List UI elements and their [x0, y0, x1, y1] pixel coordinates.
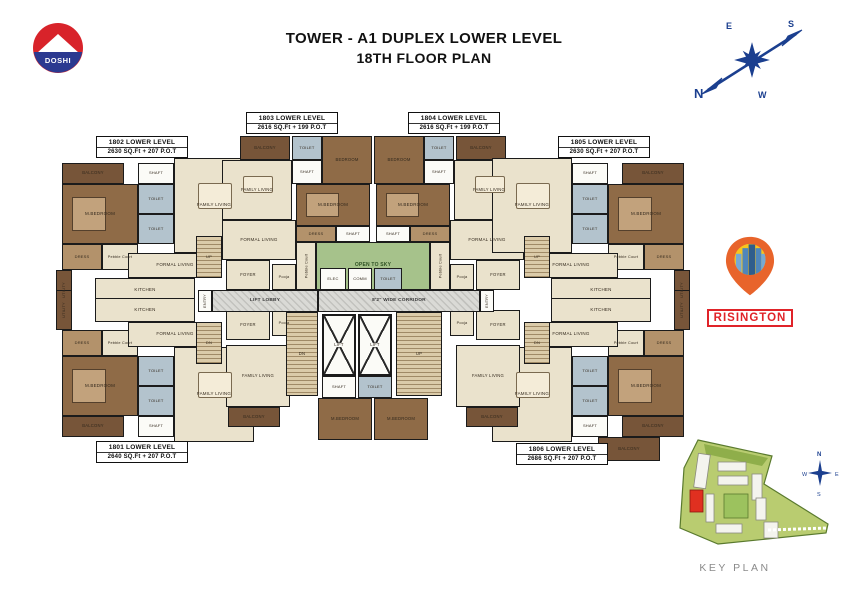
unit-label-1801: 1801 LOWER LEVEL2640 SQ.Ft + 207 P.O.T: [96, 441, 188, 463]
room-pooja: Pooja: [450, 264, 474, 290]
room-label: Pooja: [279, 275, 290, 279]
room-shaft: SHAFT: [336, 226, 370, 242]
key-plan-compass-w: W: [802, 472, 808, 478]
room-balcony: BALCONY: [62, 416, 124, 437]
unit-number: 1802 LOWER LEVEL: [97, 139, 187, 148]
room-dn: DN: [524, 322, 550, 364]
room-toilet: TOILET: [572, 184, 608, 214]
room-up: UP: [396, 312, 442, 396]
room-pooja: Pooja: [450, 310, 474, 336]
room-label: ENTRY: [485, 294, 489, 308]
room-label: OPEN TO SKY: [355, 263, 391, 268]
room-label: TOILET: [582, 399, 597, 403]
room-shaft: SHAFT: [138, 416, 174, 437]
room-toilet: TOILET: [138, 184, 174, 214]
room-label: BALCONY: [470, 146, 491, 150]
room-dress: DRESS: [644, 330, 684, 356]
room-label: DN: [299, 352, 305, 356]
room-label: SHAFT: [346, 232, 360, 236]
room-label: ELEC: [327, 277, 338, 281]
room-shaft: SHAFT: [424, 160, 454, 184]
room-label: SHAFT: [583, 424, 597, 428]
room-label: TOILET: [299, 146, 314, 150]
key-plan-highlight-a1: [690, 490, 703, 512]
room-dn: DN: [196, 322, 222, 364]
room-label: FORMAL LIVING: [552, 263, 589, 268]
room-label: M.BEDROOM: [331, 417, 359, 421]
room-balcony: BALCONY: [228, 407, 280, 427]
room-label: LIFT: [369, 343, 380, 347]
room-label: DRESS: [423, 232, 438, 236]
room-label: BALCONY: [642, 424, 663, 428]
key-plan-label: KEY PLAN: [660, 562, 810, 574]
room-label: M.BEDROOM: [387, 417, 415, 421]
unit-area: 2630 SQ.Ft + 207 P.O.T: [97, 148, 187, 155]
room-label: SHAFT: [149, 171, 163, 175]
unit-number: 1803 LOWER LEVEL: [247, 115, 337, 124]
room-toilet: TOILET: [572, 386, 608, 416]
room-pooja: Pooja: [272, 264, 296, 290]
room-label: KITCHEN: [590, 308, 611, 313]
room-label: LIFT LOBBY: [250, 298, 280, 303]
room-label: TOILET: [148, 227, 163, 231]
room-label: DN: [534, 341, 540, 345]
room-label: TOILET: [582, 369, 597, 373]
room-toilet: TOILET: [138, 214, 174, 244]
room-label: DRESS: [309, 232, 324, 236]
room-label: TOILET: [367, 385, 382, 389]
room-label: UTILITY: [680, 282, 684, 298]
room-dress: DRESS: [296, 226, 336, 242]
room-label: FAMILY LIVING: [515, 392, 549, 397]
room-balcony: BALCONY: [456, 136, 506, 160]
room-label: BEDROOM: [335, 158, 358, 162]
room-8-2-wide-corridor: 8'2" WIDE CORRIDOR: [318, 290, 480, 312]
room-label: FOYER: [240, 273, 255, 277]
key-plan-compass-n: N: [817, 452, 821, 458]
room-label: FAMILY LIVING: [197, 203, 231, 208]
room-label: Pooja: [457, 275, 468, 279]
room-m-bedroom: M.BEDROOM: [608, 184, 684, 244]
room-label: DRESS: [657, 341, 672, 345]
room-label: TOILET: [582, 227, 597, 231]
room-foyer: FOYER: [226, 260, 270, 290]
room-label: M.BEDROOM: [85, 212, 115, 217]
room-kitchen: KITCHEN: [95, 298, 195, 322]
room-lift: LIFT: [322, 314, 356, 376]
room-m-bedroom: M.BEDROOM: [296, 184, 370, 226]
unit-number: 1804 LOWER LEVEL: [409, 115, 499, 124]
room-label: KITCHEN: [134, 288, 155, 293]
room-label: ENTRY: [203, 294, 207, 308]
unit-label-1806: 1806 LOWER LEVEL2686 SQ.Ft + 207 P.O.T: [516, 443, 608, 465]
room-dress: DRESS: [62, 330, 102, 356]
room-lift: LIFT: [358, 314, 392, 376]
room-label: DRESS: [75, 341, 90, 345]
room-label: BALCONY: [481, 415, 502, 419]
room-foyer: FOYER: [226, 310, 270, 340]
room-dress: DRESS: [644, 244, 684, 270]
room-up: UP: [524, 236, 550, 278]
room-label: Pebble Court: [614, 255, 639, 259]
unit-number: 1806 LOWER LEVEL: [517, 446, 607, 455]
room-kitchen: KITCHEN: [551, 298, 651, 322]
room-balcony: BALCONY: [466, 407, 518, 427]
key-plan: N E S W: [660, 432, 846, 565]
room-label: 8'2" WIDE CORRIDOR: [372, 298, 426, 303]
room-label: Pebble Court: [438, 254, 442, 279]
unit-area: 2640 SQ.Ft + 207 P.O.T: [97, 453, 187, 460]
room-shaft: SHAFT: [572, 163, 608, 184]
room-toilet: TOILET: [572, 356, 608, 386]
room-label: FORMAL LIVING: [156, 263, 193, 268]
room-family-living: FAMILY LIVING: [226, 345, 290, 407]
room-label: TOILET: [148, 399, 163, 403]
unit-label-1802: 1802 LOWER LEVEL2630 SQ.Ft + 207 P.O.T: [96, 136, 188, 158]
room-m-bedroom: M.BEDROOM: [62, 184, 138, 244]
unit-area: 2616 SQ.Ft + 199 P.O.T: [247, 124, 337, 131]
room-label: M.BEDROOM: [631, 212, 661, 217]
risington-pin-icon: [720, 234, 780, 300]
room-toilet: TOILET: [138, 386, 174, 416]
room-label: M.BEDROOM: [631, 384, 661, 389]
room-comm: COMM: [348, 268, 372, 290]
room-label: BALCONY: [642, 171, 663, 175]
room-label: KITCHEN: [134, 308, 155, 313]
room-label: DN: [206, 341, 212, 345]
room-label: FOYER: [490, 273, 505, 277]
room-entry: ENTRY: [480, 290, 494, 312]
room-label: Pebble Court: [614, 341, 639, 345]
room-m-bedroom: M.BEDROOM: [374, 398, 428, 440]
room-label: DRESS: [657, 255, 672, 259]
room-label: DRESS: [75, 255, 90, 259]
room-lift-lobby: LIFT LOBBY: [212, 290, 318, 312]
room-label: BALCONY: [82, 424, 103, 428]
room-label: UP: [206, 255, 212, 259]
room-foyer: FOYER: [476, 260, 520, 290]
room-label: BALCONY: [254, 146, 275, 150]
unit-area: 2686 SQ.Ft + 207 P.O.T: [517, 455, 607, 462]
room-balcony: BALCONY: [622, 163, 684, 184]
room-toilet: TOILET: [138, 356, 174, 386]
room-label: TOILET: [148, 197, 163, 201]
key-plan-map: N E S W: [660, 432, 846, 560]
room-label: FAMILY LIVING: [473, 188, 505, 192]
key-plan-compass-s: S: [817, 492, 821, 498]
room-label: TOILET: [582, 197, 597, 201]
room-label: FAMILY LIVING: [472, 374, 504, 378]
room-foyer: FOYER: [476, 310, 520, 340]
key-plan-park: [724, 494, 748, 518]
room-elec: ELEC: [320, 268, 346, 290]
room-toilet: TOILET: [424, 136, 454, 160]
room-m-bedroom: M.BEDROOM: [608, 356, 684, 416]
room-shaft: SHAFT: [376, 226, 410, 242]
room-label: M.BEDROOM: [398, 203, 428, 208]
room-balcony: BALCONY: [240, 136, 290, 160]
unit-label-1805: 1805 LOWER LEVEL2630 SQ.Ft + 207 P.O.T: [558, 136, 650, 158]
room-balcony: BALCONY: [62, 163, 124, 184]
unit-label-1804: 1804 LOWER LEVEL2616 SQ.Ft + 199 P.O.T: [408, 112, 500, 134]
room-label: Pebble Court: [108, 255, 133, 259]
room-label: UP: [416, 352, 422, 356]
room-label: FOYER: [240, 323, 255, 327]
room-label: FORMAL LIVING: [156, 332, 193, 337]
room-label: LIFT: [333, 343, 344, 347]
room-label: SHAFT: [583, 171, 597, 175]
room-label: FORMAL LIVING: [240, 238, 277, 243]
room-label: SHAFT: [432, 170, 446, 174]
room-label: SHAFT: [300, 170, 314, 174]
risington-logo: RISINGTON: [694, 234, 806, 327]
key-plan-compass-e: E: [835, 472, 839, 478]
unit-label-1803: 1803 LOWER LEVEL2616 SQ.Ft + 199 P.O.T: [246, 112, 338, 134]
room-dress: DRESS: [62, 244, 102, 270]
room-toilet: TOILET: [374, 268, 402, 290]
unit-area: 2630 SQ.Ft + 207 P.O.T: [559, 148, 649, 155]
room-label: BEDROOM: [387, 158, 410, 162]
room-label: FAMILY LIVING: [241, 188, 273, 192]
room-bedroom: BEDROOM: [374, 136, 424, 184]
room-dn: DN: [286, 312, 318, 396]
room-label: UTILITY: [680, 302, 684, 318]
room-shaft: SHAFT: [292, 160, 322, 184]
room-dress: DRESS: [410, 226, 450, 242]
room-label: FAMILY LIVING: [242, 374, 274, 378]
room-shaft: SHAFT: [138, 163, 174, 184]
room-entry: ENTRY: [198, 290, 212, 312]
room-label: M.BEDROOM: [318, 203, 348, 208]
room-label: FORMAL LIVING: [468, 238, 505, 243]
room-toilet: TOILET: [358, 376, 392, 398]
risington-wordmark: RISINGTON: [707, 309, 794, 327]
room-label: Pooja: [457, 321, 468, 325]
room-label: FAMILY LIVING: [515, 203, 549, 208]
room-pebble-court: Pebble Court: [296, 242, 316, 290]
room-label: UTILITY: [62, 302, 66, 318]
room-label: UP: [534, 255, 540, 259]
room-label: TOILET: [431, 146, 446, 150]
room-m-bedroom: M.BEDROOM: [62, 356, 138, 416]
room-toilet: TOILET: [292, 136, 322, 160]
room-label: Pooja: [279, 321, 290, 325]
unit-area: 2616 SQ.Ft + 199 P.O.T: [409, 124, 499, 131]
room-label: FOYER: [490, 323, 505, 327]
room-formal-living: FORMAL LIVING: [222, 220, 296, 260]
page: DOSHI TOWER - A1 DUPLEX LOWER LEVEL 18TH…: [0, 0, 848, 600]
room-label: BALCONY: [82, 171, 103, 175]
unit-number: 1805 LOWER LEVEL: [559, 139, 649, 148]
key-plan-compass-icon: N E S W: [802, 452, 839, 498]
room-label: SHAFT: [332, 385, 346, 389]
room-bedroom: BEDROOM: [322, 136, 372, 184]
room-label: FORMAL LIVING: [552, 332, 589, 337]
room-label: SHAFT: [149, 424, 163, 428]
room-label: FAMILY LIVING: [197, 392, 231, 397]
room-label: Pebble Court: [108, 341, 133, 345]
room-m-bedroom: M.BEDROOM: [318, 398, 372, 440]
room-m-bedroom: M.BEDROOM: [376, 184, 450, 226]
room-label: BALCONY: [618, 447, 639, 451]
room-up: UP: [196, 236, 222, 278]
room-label: Pebble Court: [304, 254, 308, 279]
room-label: TOILET: [380, 277, 395, 281]
room-label: COMM: [353, 277, 366, 281]
room-label: SHAFT: [386, 232, 400, 236]
unit-number: 1801 LOWER LEVEL: [97, 444, 187, 453]
room-label: M.BEDROOM: [85, 384, 115, 389]
room-toilet: TOILET: [572, 214, 608, 244]
room-shaft: SHAFT: [322, 376, 356, 398]
room-label: KITCHEN: [590, 288, 611, 293]
room-family-living: FAMILY LIVING: [222, 160, 292, 220]
room-label: BALCONY: [243, 415, 264, 419]
room-label: UTILITY: [62, 282, 66, 298]
room-label: TOILET: [148, 369, 163, 373]
room-family-living: FAMILY LIVING: [456, 345, 520, 407]
room-pebble-court: Pebble Court: [430, 242, 450, 290]
room-shaft: SHAFT: [572, 416, 608, 437]
